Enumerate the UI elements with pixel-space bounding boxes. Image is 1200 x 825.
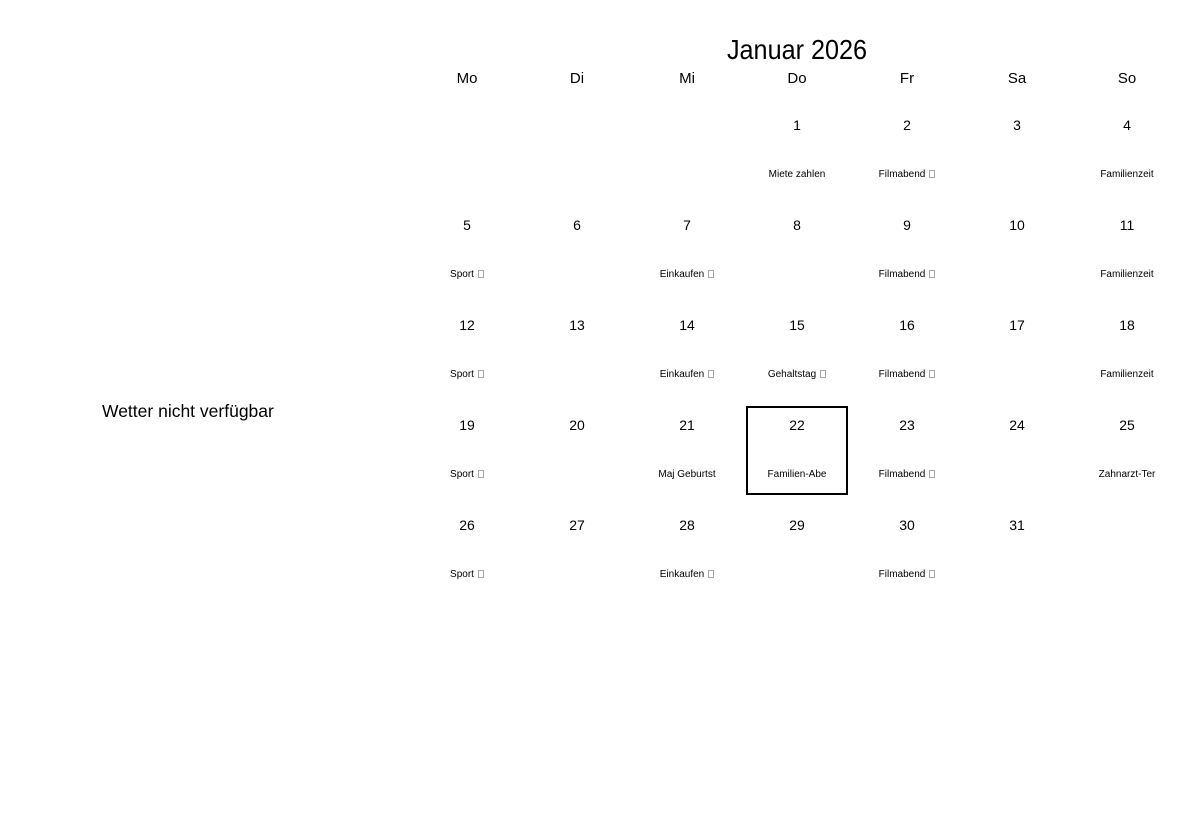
day-number: 29 — [742, 505, 852, 545]
event-text: Einkaufen — [660, 269, 704, 280]
weeks-grid: 1Miete zahlen2Filmabend34Familienzeit5Sp… — [412, 105, 1182, 605]
missing-glyph-icon — [929, 170, 935, 178]
missing-glyph-icon — [929, 370, 935, 378]
event-text: Familien-Abe — [768, 469, 827, 480]
day-cell-29[interactable]: 29 — [742, 505, 852, 605]
weekday-header-so: So — [1072, 65, 1182, 93]
event-text: Sport — [450, 269, 474, 280]
event-label: Filmabend — [852, 268, 962, 282]
day-number: 7 — [632, 205, 742, 245]
day-number — [1072, 505, 1182, 545]
weekday-header-mi: Mi — [632, 65, 742, 93]
day-number: 9 — [852, 205, 962, 245]
day-cell-30[interactable]: 30Filmabend — [852, 505, 962, 605]
day-cell-empty — [412, 105, 522, 205]
day-number: 10 — [962, 205, 1072, 245]
event-text: Filmabend — [879, 169, 926, 180]
day-number: 16 — [852, 305, 962, 345]
day-number: 24 — [962, 405, 1072, 445]
event-text: Einkaufen — [660, 569, 704, 580]
day-cell-19[interactable]: 19Sport — [412, 405, 522, 505]
day-number: 17 — [962, 305, 1072, 345]
event-text: Zahnarzt-Ter — [1099, 469, 1156, 480]
day-number: 2 — [852, 105, 962, 145]
event-label: Sport — [412, 268, 522, 282]
day-cell-2[interactable]: 2Filmabend — [852, 105, 962, 205]
day-number: 28 — [632, 505, 742, 545]
day-cell-6[interactable]: 6 — [522, 205, 632, 305]
weekday-header-sa: Sa — [962, 65, 1072, 93]
event-label: Sport — [412, 368, 522, 382]
day-cell-12[interactable]: 12Sport — [412, 305, 522, 405]
event-text: Sport — [450, 569, 474, 580]
day-cell-31[interactable]: 31 — [962, 505, 1072, 605]
day-cell-24[interactable]: 24 — [962, 405, 1072, 505]
day-cell-empty — [632, 105, 742, 205]
calendar-week-row: 12Sport1314Einkaufen15Gehaltstag16Filmab… — [412, 305, 1182, 405]
event-label: Familienzeit — [1072, 168, 1182, 182]
event-label: Filmabend — [852, 468, 962, 482]
event-label: Filmabend — [852, 368, 962, 382]
day-cell-14[interactable]: 14Einkaufen — [632, 305, 742, 405]
weekday-header-di: Di — [522, 65, 632, 93]
event-label: Sport — [412, 568, 522, 582]
event-label: Einkaufen — [632, 268, 742, 282]
day-number: 11 — [1072, 205, 1182, 245]
day-number: 8 — [742, 205, 852, 245]
day-cell-empty — [522, 105, 632, 205]
event-text: Filmabend — [879, 269, 926, 280]
day-number: 3 — [962, 105, 1072, 145]
day-cell-8[interactable]: 8 — [742, 205, 852, 305]
event-text: Einkaufen — [660, 369, 704, 380]
day-cell-15[interactable]: 15Gehaltstag — [742, 305, 852, 405]
day-cell-23[interactable]: 23Filmabend — [852, 405, 962, 505]
day-cell-26[interactable]: 26Sport — [412, 505, 522, 605]
event-text: Filmabend — [879, 369, 926, 380]
calendar-week-row: 5Sport67Einkaufen89Filmabend1011Familien… — [412, 205, 1182, 305]
day-cell-13[interactable]: 13 — [522, 305, 632, 405]
missing-glyph-icon — [708, 370, 714, 378]
day-number — [522, 105, 632, 145]
event-text: Maj Geburtst — [658, 469, 715, 480]
calendar-week-row: 26Sport2728Einkaufen2930Filmabend31 — [412, 505, 1182, 605]
missing-glyph-icon — [708, 270, 714, 278]
event-label: Gehaltstag — [742, 368, 852, 382]
day-cell-25[interactable]: 25Zahnarzt-Ter — [1072, 405, 1182, 505]
day-cell-20[interactable]: 20 — [522, 405, 632, 505]
event-label: Filmabend — [852, 568, 962, 582]
weather-unavailable-text: Wetter nicht verfügbar — [102, 401, 274, 422]
day-number: 13 — [522, 305, 632, 345]
day-cell-3[interactable]: 3 — [962, 105, 1072, 205]
day-number: 19 — [412, 405, 522, 445]
day-number: 30 — [852, 505, 962, 545]
day-number: 31 — [962, 505, 1072, 545]
event-text: Filmabend — [879, 469, 926, 480]
day-number: 15 — [742, 305, 852, 345]
day-number: 25 — [1072, 405, 1182, 445]
day-cell-27[interactable]: 27 — [522, 505, 632, 605]
event-label: Sport — [412, 468, 522, 482]
day-number: 1 — [742, 105, 852, 145]
month-calendar: Januar 2026 Mo Di Mi Do Fr Sa So 1Miete … — [412, 35, 1182, 605]
weekday-header-do: Do — [742, 65, 852, 93]
calendar-week-row: 1Miete zahlen2Filmabend34Familienzeit — [412, 105, 1182, 205]
day-cell-7[interactable]: 7Einkaufen — [632, 205, 742, 305]
missing-glyph-icon — [708, 570, 714, 578]
missing-glyph-icon — [478, 570, 484, 578]
event-text: Gehaltstag — [768, 369, 816, 380]
event-label: Maj Geburtst — [632, 468, 742, 482]
event-text: Familienzeit — [1100, 369, 1153, 380]
missing-glyph-icon — [929, 270, 935, 278]
day-cell-11[interactable]: 11Familienzeit — [1072, 205, 1182, 305]
calendar-page: { "page": { "background_color": "#ffffff… — [0, 0, 1200, 825]
day-cell-4[interactable]: 4Familienzeit — [1072, 105, 1182, 205]
calendar-month-title: Januar 2026 — [451, 35, 1144, 65]
day-cell-17[interactable]: 17 — [962, 305, 1072, 405]
weekday-header-row: Mo Di Mi Do Fr Sa So — [412, 65, 1182, 93]
day-cell-18[interactable]: 18Familienzeit — [1072, 305, 1182, 405]
day-cell-21[interactable]: 21Maj Geburtst — [632, 405, 742, 505]
missing-glyph-icon — [929, 570, 935, 578]
day-number: 21 — [632, 405, 742, 445]
event-label: Einkaufen — [632, 368, 742, 382]
day-number: 12 — [412, 305, 522, 345]
event-text: Sport — [450, 469, 474, 480]
day-number: 18 — [1072, 305, 1182, 345]
weekday-header-mo: Mo — [412, 65, 522, 93]
event-label: Einkaufen — [632, 568, 742, 582]
day-number: 20 — [522, 405, 632, 445]
event-text: Filmabend — [879, 569, 926, 580]
day-cell-16[interactable]: 16Filmabend — [852, 305, 962, 405]
missing-glyph-icon — [478, 370, 484, 378]
day-number: 27 — [522, 505, 632, 545]
event-text: Familienzeit — [1100, 269, 1153, 280]
event-label: Familien-Abe — [742, 468, 852, 482]
day-number: 5 — [412, 205, 522, 245]
day-cell-28[interactable]: 28Einkaufen — [632, 505, 742, 605]
day-number: 23 — [852, 405, 962, 445]
day-cell-empty — [1072, 505, 1182, 605]
event-text: Familienzeit — [1100, 169, 1153, 180]
day-number: 22 — [742, 405, 852, 445]
event-label: Miete zahlen — [742, 168, 852, 182]
day-number — [632, 105, 742, 145]
day-number: 26 — [412, 505, 522, 545]
day-cell-9[interactable]: 9Filmabend — [852, 205, 962, 305]
missing-glyph-icon — [929, 470, 935, 478]
calendar-week-row: 19Sport2021Maj Geburtst22Familien-Abe23F… — [412, 405, 1182, 505]
event-label: Filmabend — [852, 168, 962, 182]
day-number: 6 — [522, 205, 632, 245]
day-cell-10[interactable]: 10 — [962, 205, 1072, 305]
day-number — [412, 105, 522, 145]
event-text: Miete zahlen — [769, 169, 826, 180]
missing-glyph-icon — [478, 270, 484, 278]
event-label: Familienzeit — [1072, 268, 1182, 282]
day-cell-5[interactable]: 5Sport — [412, 205, 522, 305]
missing-glyph-icon — [820, 370, 826, 378]
day-cell-1[interactable]: 1Miete zahlen — [742, 105, 852, 205]
weekday-header-fr: Fr — [852, 65, 962, 93]
event-label: Zahnarzt-Ter — [1072, 468, 1182, 482]
day-number: 14 — [632, 305, 742, 345]
missing-glyph-icon — [478, 470, 484, 478]
day-number: 4 — [1072, 105, 1182, 145]
event-text: Sport — [450, 369, 474, 380]
event-label: Familienzeit — [1072, 368, 1182, 382]
day-cell-22[interactable]: 22Familien-Abe — [742, 405, 852, 505]
